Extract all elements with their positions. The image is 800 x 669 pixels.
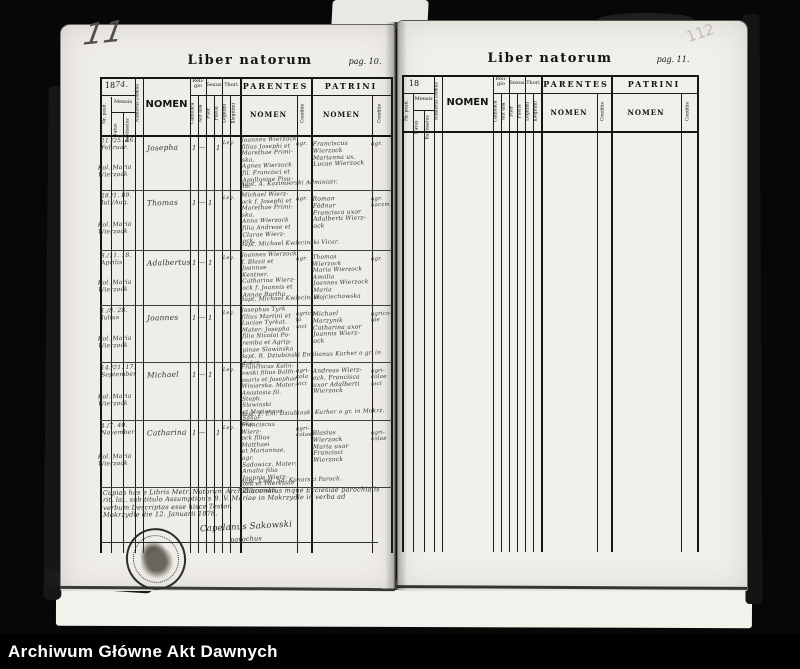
col-thori: Thori — [222, 83, 240, 88]
col-patrini-nomen: NOMEN — [311, 111, 372, 118]
col-parentes: PARENTES — [240, 82, 311, 90]
col-mensis: Mensis — [111, 100, 135, 105]
entry-nomen: Adalbertus — [147, 258, 197, 268]
entry-religio-mark: 1 — [192, 430, 197, 438]
col-parentes-conditio: Conditio — [302, 96, 307, 130]
col-nomen: NOMEN — [143, 100, 190, 111]
entry-patrini: Franciscus Wierzock Marianna ux. Lucae W… — [313, 140, 372, 169]
grid-line — [434, 75, 435, 552]
col-sexus: Sexus — [509, 81, 525, 86]
right-page-label: pag. 11. — [648, 56, 698, 64]
register-entry: 28./1. 89. Jul./Aug. Kol. Maria Wierzock… — [0, 190, 800, 250]
col-numerus-domus: Numerus Domus — [137, 77, 142, 129]
col-puer: Puer — [511, 94, 516, 128]
grid-line — [517, 93, 518, 552]
grid-line — [442, 75, 443, 552]
entry-parentes: Michael Wierz- ock f. Josephi et Maretha… — [241, 191, 298, 245]
col-illegitimi: Illegitimi — [233, 96, 238, 130]
entry-dates: 4./7. 40. November — [101, 422, 143, 437]
register-entry: 4./7. 40. November Kol. Maria Wierzock C… — [0, 420, 800, 487]
entry-place: Kol. Maria Wierzock — [98, 335, 144, 350]
entry-patrini-conditio: agri- colae — [371, 430, 392, 443]
grid-line — [597, 93, 598, 552]
col-parentes-nomen: NOMEN — [541, 109, 597, 116]
entry-sexus-mark: 1 — [208, 200, 213, 208]
col-illegitimi: Illegitimi — [535, 94, 540, 128]
entry-parentes-conditio: agr. — [296, 141, 311, 148]
entry-parentes: Josephus Tyrk filius Martini et Luciae T… — [241, 306, 298, 354]
grid-line — [402, 131, 699, 133]
entry-aut-mark: — — [199, 372, 205, 379]
entry-thori-mark: Leg. — [223, 426, 235, 432]
entry-nomen: Josepha — [147, 143, 191, 153]
entry-place: Kol. Maria Wierzock — [98, 393, 144, 408]
entry-religio-mark: 1 — [192, 315, 197, 323]
grid-line — [541, 75, 543, 552]
register-entry: 21./25. 46. Februar. Kol. Maria Wierzock… — [0, 135, 800, 190]
entry-aut-mark: — — [199, 260, 205, 267]
col-mensis: Mensis — [413, 97, 434, 102]
grid-line — [413, 110, 434, 111]
grid-line — [611, 75, 613, 552]
grid-line — [100, 77, 393, 79]
entry-thori-mark: Leg. — [223, 311, 235, 317]
grid-line — [525, 75, 526, 552]
col-catholica: Catholica — [495, 94, 500, 128]
col-baptisatus: Baptisatus — [427, 112, 432, 142]
entry-aut-mark: — — [199, 145, 205, 152]
entry-thori-mark: Leg. — [223, 196, 235, 202]
grid-line — [190, 95, 393, 96]
grid-line — [111, 112, 135, 113]
grid-line — [413, 93, 414, 552]
left-page-title: Liber natorum — [140, 54, 360, 68]
entry-patrini: Michael Marzynik Catharina uxor Joannis … — [313, 310, 372, 346]
col-patrini-conditio: Conditio — [687, 94, 692, 128]
col-religio: Reli- gio — [493, 77, 509, 88]
col-nr-posit: Nr. posit. — [406, 92, 411, 128]
grid-line — [493, 93, 698, 94]
entry-religio-mark: 1 — [192, 145, 197, 153]
col-legitimi: Legitimi — [224, 96, 229, 130]
col-puella: Puella — [519, 94, 524, 128]
year-handwritten: 74. — [115, 80, 129, 89]
col-puer: Puer — [208, 96, 213, 130]
entry-parentes-conditio: agrico- la loci — [296, 311, 312, 330]
register-entry: 14./21. 17. September Kol. Maria Wierzoc… — [0, 362, 800, 420]
grid-line — [681, 93, 682, 552]
right-page-title: Liber natorum — [440, 52, 660, 66]
col-aut-alia: Aut alia — [200, 96, 205, 130]
entry-thori-mark: Leg. — [223, 256, 235, 262]
entry-religio-mark: 1 — [192, 200, 197, 208]
certification-text: Copias has e Libris Metr. Natorum Archid… — [103, 486, 393, 520]
col-patrini-conditio: Conditio — [379, 96, 384, 130]
entry-place: Kol. Maria Wierzock — [98, 453, 144, 468]
entry-place: Kol. Maria Wierzock — [98, 221, 144, 236]
entry-aut-mark: — — [199, 430, 205, 437]
col-patrini: PATRINI — [311, 82, 391, 90]
entry-parentes: Franciscus Kalin- owski filius Balth- as… — [241, 363, 299, 428]
entry-place: Kol. Maria Wierzock — [98, 164, 144, 179]
grid-line — [402, 75, 404, 552]
col-sexus: Sexus — [206, 83, 222, 88]
register-entry: 8./11. 18. Aprilis Kol. Maria Wierzock A… — [0, 250, 800, 305]
entry-patrini: Andreas Wierz- ock, Francisca uxor Adalb… — [313, 367, 372, 396]
entry-nomen: Michael — [147, 370, 191, 380]
entry-patrini: Blasius Wierzock Maria uxor Francisci Wi… — [313, 429, 372, 465]
year-printed: 18 — [408, 80, 420, 88]
col-catholica: Catholica — [192, 96, 197, 130]
col-numerus-domus: Numerus Domus — [436, 75, 441, 127]
entry-parentes-conditio: agr. — [296, 256, 311, 263]
col-nomen: NOMEN — [442, 98, 493, 109]
entry-sexus-mark: 1 — [208, 315, 213, 323]
left-page-label: pag. 10. — [340, 58, 390, 66]
entry-aut-mark: — — [199, 315, 205, 322]
archive-scan-viewer: 11 112 Liber natorum pag. 10. 18 74. Nr.… — [0, 0, 800, 669]
col-religio: Reli- gio — [190, 79, 206, 90]
entry-dates: 21./25. 46. Februar. — [101, 137, 143, 152]
grid-line — [493, 75, 494, 552]
col-natus: Natus — [416, 112, 421, 142]
entry-sexus-mark: 1 — [208, 372, 213, 380]
grid-line — [697, 75, 699, 552]
entry-nomen: Joannes — [147, 313, 191, 323]
col-thori: Thori — [525, 81, 541, 86]
entry-patrini: Roman Födnar Francisca uxor Adalberti Wi… — [313, 195, 372, 231]
grid-line — [501, 93, 502, 552]
entry-religio-mark: 1 — [192, 260, 197, 268]
grid-line — [402, 75, 699, 77]
col-legitimi: Legitimi — [527, 94, 532, 128]
entry-religio-mark: 1 — [192, 372, 197, 380]
col-parentes-nomen: NOMEN — [240, 111, 297, 118]
entry-nomen: Catharina — [147, 428, 195, 438]
entry-patrini-conditio: agrico- lae — [371, 311, 392, 324]
entry-parentes-conditio: agri- cola loci — [296, 368, 312, 387]
register-entry: 1./8. 28. Julius Kol. Maria Wierzock Joa… — [0, 305, 800, 362]
entry-parentes-conditio: agr. — [296, 196, 311, 203]
grid-line — [533, 93, 534, 552]
entry-patrini-conditio: agri- colae loci — [371, 368, 393, 387]
col-patrini-nomen: NOMEN — [611, 109, 681, 116]
entry-patrini-conditio: agr. — [371, 141, 392, 148]
entry-thori-mark: Leg. — [223, 141, 235, 147]
col-parentes-conditio: Conditio — [602, 94, 607, 128]
col-patrini: PATRINI — [611, 80, 697, 88]
entry-dates: 1./8. 28. Julius — [101, 307, 143, 322]
entry-dates: 14./21. 17. September — [101, 364, 143, 379]
entry-patrini-conditio: agr. kaczm. — [371, 196, 392, 209]
col-nr-posit: Nr. posit. — [104, 95, 109, 131]
entry-patrini-conditio: agr. — [371, 256, 392, 263]
entry-thori-mark: Leg. — [223, 368, 235, 374]
grid-line — [509, 75, 510, 552]
entry-dates: 28./1. 89. Jul./Aug. — [101, 192, 143, 207]
entry-parentes: Joannes Wierzock f. Blasii et Joannae Ke… — [241, 251, 298, 299]
col-aut-alia: Aut alia — [503, 94, 508, 128]
entry-dates: 8./11. 18. Aprilis — [101, 252, 143, 267]
entry-sexus-mark: 1 — [216, 145, 221, 153]
archive-name-label: Archiwum Główne Akt Dawnych — [8, 642, 278, 662]
entry-parentes-conditio: agri- colae — [296, 426, 311, 439]
entry-place: Kol. Maria Wierzock — [98, 279, 144, 294]
entry-sexus-mark: 1 — [216, 430, 221, 438]
grid-line — [424, 110, 425, 552]
col-puella: Puella — [216, 96, 221, 130]
entry-aut-mark: — — [199, 200, 205, 207]
col-parentes: PARENTES — [541, 80, 611, 88]
entry-nomen: Thomas — [147, 198, 191, 208]
entry-sexus-mark: 1 — [208, 260, 213, 268]
